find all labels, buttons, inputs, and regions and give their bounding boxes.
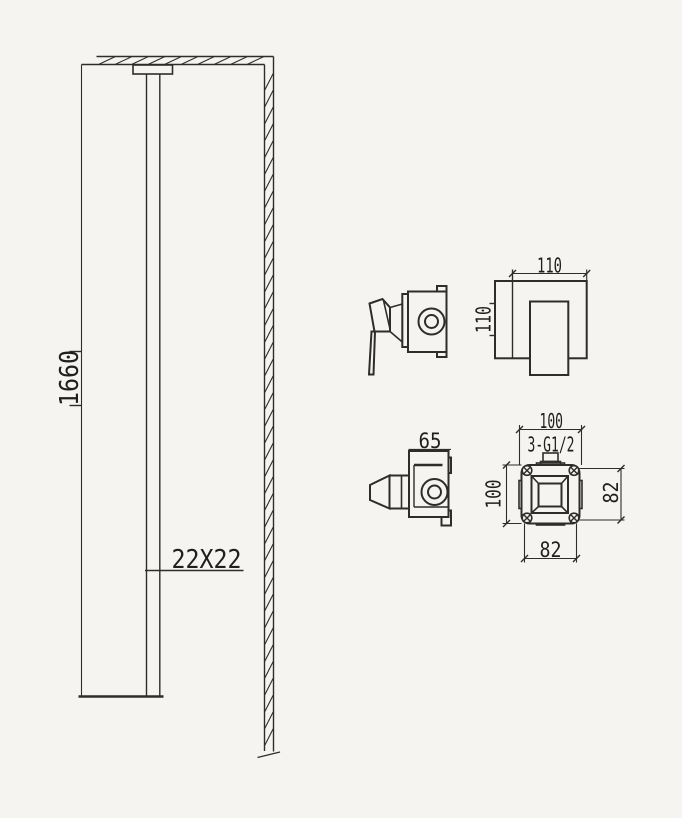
trim-plate-front-view: 110 110 [472,254,591,376]
dim-column-height-text: 1660 [55,350,85,406]
drawing-canvas: 1660 22X22 110 [0,0,682,818]
ceiling-hatch [99,57,264,64]
dim-lug-spacing-horizontal: 82 [521,524,580,563]
ceiling-section [82,57,274,65]
mixer-escutcheon [402,294,408,347]
rough-in-valve-front-view: 100 3-G1/2 [482,409,625,563]
mixer-valve-side-view [369,286,447,375]
dim-plate-height-text: 110 [472,306,496,333]
mixer-cartridge [390,304,402,342]
trim-plate-handle [530,302,568,376]
mixer-lever-arm [369,332,375,375]
wall-section [258,57,281,758]
elevation-view: 1660 22X22 [55,57,280,758]
dim-lug-spacing-vertical-text: 82 [599,482,623,504]
wall-hatch [265,74,273,746]
dim-plate-width-text: 110 [537,254,562,278]
label-column-section-text: 22X22 [172,545,242,575]
dim-lug-spacing-horizontal-text: 82 [540,538,562,562]
mixer-body [408,292,447,353]
dim-valve-width-text: 100 [540,409,564,433]
dim-column-height: 1660 [55,65,85,697]
shower-column [79,65,173,697]
dim-diverter-depth: 65 [409,429,452,453]
technical-drawing: 1660 22X22 110 [0,0,682,818]
wall-break-mark [258,752,281,758]
dim-valve-height-text: 100 [482,480,506,509]
diverter-knob-cone [370,476,390,509]
ceiling-bracket [133,65,173,74]
dim-lug-spacing-vertical: 82 [578,465,625,524]
diverter-side-view: 65 [370,429,451,526]
dim-plate-width: 110 [509,254,590,282]
dim-plate-height: 110 [472,304,496,336]
dim-valve-height: 100 [482,462,522,528]
dim-diverter-depth-text: 65 [419,429,442,453]
